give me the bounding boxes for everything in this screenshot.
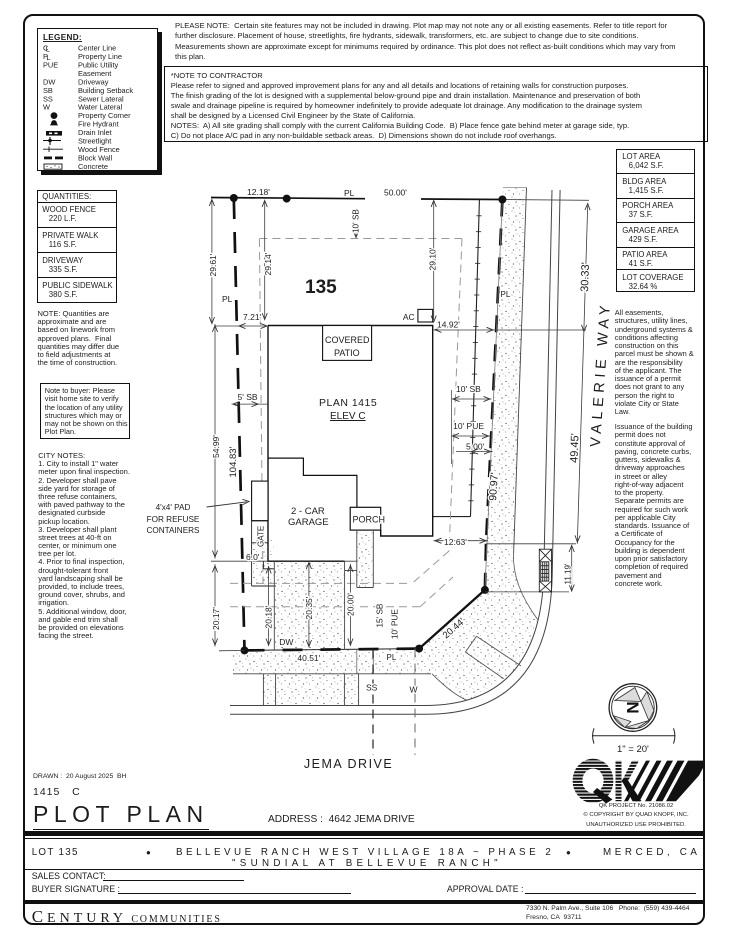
svg-text:20.00': 20.00'	[346, 593, 356, 616]
svg-text:54.99': 54.99'	[211, 435, 221, 458]
svg-text:50.00': 50.00'	[384, 188, 407, 198]
svg-text:ELEV C: ELEV C	[330, 411, 366, 422]
svg-text:20.18': 20.18'	[264, 605, 274, 628]
svg-text:AC: AC	[403, 312, 415, 322]
svg-text:20.35': 20.35'	[304, 596, 314, 619]
svg-text:PL: PL	[222, 294, 233, 304]
svg-text:PL: PL	[344, 188, 355, 198]
svg-text:PL: PL	[387, 653, 397, 662]
svg-text:10' PUE: 10' PUE	[453, 421, 484, 431]
svg-text:1" = 20': 1" = 20'	[617, 744, 649, 755]
svg-text:104.83': 104.83'	[228, 446, 239, 477]
svg-text:30.33': 30.33'	[579, 262, 592, 292]
svg-text:GATE: GATE	[257, 526, 266, 547]
svg-text:29.14': 29.14'	[263, 252, 273, 275]
svg-text:2 - CAR: 2 - CAR	[291, 506, 325, 517]
svg-text:Concrete: Concrete	[78, 161, 108, 170]
svg-text:7.21': 7.21'	[243, 312, 262, 322]
svg-text:COVERED: COVERED	[325, 335, 370, 345]
svg-text:PATIO: PATIO	[334, 348, 360, 358]
svg-text:135: 135	[305, 277, 337, 298]
svg-text:SS: SS	[366, 683, 378, 693]
svg-text:N: N	[623, 701, 642, 713]
svg-text:W: W	[410, 685, 418, 695]
svg-text:10' SB: 10' SB	[352, 209, 361, 233]
svg-text:DW: DW	[279, 637, 293, 647]
svg-text:10' SB: 10' SB	[456, 384, 481, 394]
svg-text:12.18': 12.18'	[247, 187, 270, 197]
svg-text:PLAN 1415: PLAN 1415	[319, 397, 377, 409]
svg-text:49.45': 49.45'	[569, 433, 582, 463]
svg-text:PORCH: PORCH	[353, 515, 386, 525]
svg-text:29.10': 29.10'	[428, 247, 438, 270]
svg-text:90.97': 90.97'	[487, 472, 501, 501]
svg-text:JEMA DRIVE: JEMA DRIVE	[304, 757, 393, 771]
svg-text:W: W	[43, 102, 50, 111]
svg-text:6.0': 6.0'	[246, 552, 260, 562]
svg-text:20.17': 20.17'	[211, 607, 221, 630]
svg-text:12.63': 12.63'	[444, 537, 467, 547]
svg-text:GARAGE: GARAGE	[288, 517, 329, 528]
svg-text:PL: PL	[501, 290, 511, 299]
svg-text:14.92': 14.92'	[437, 320, 460, 330]
svg-text:5' SB: 5' SB	[238, 392, 258, 402]
svg-text:40.51': 40.51'	[297, 653, 320, 663]
svg-text:29.61': 29.61'	[208, 253, 218, 276]
svg-text:15' SB: 15' SB	[376, 603, 385, 627]
svg-text:PUE: PUE	[43, 60, 58, 69]
svg-text:11.19': 11.19'	[564, 563, 573, 584]
svg-text:10' PUE: 10' PUE	[391, 609, 400, 639]
